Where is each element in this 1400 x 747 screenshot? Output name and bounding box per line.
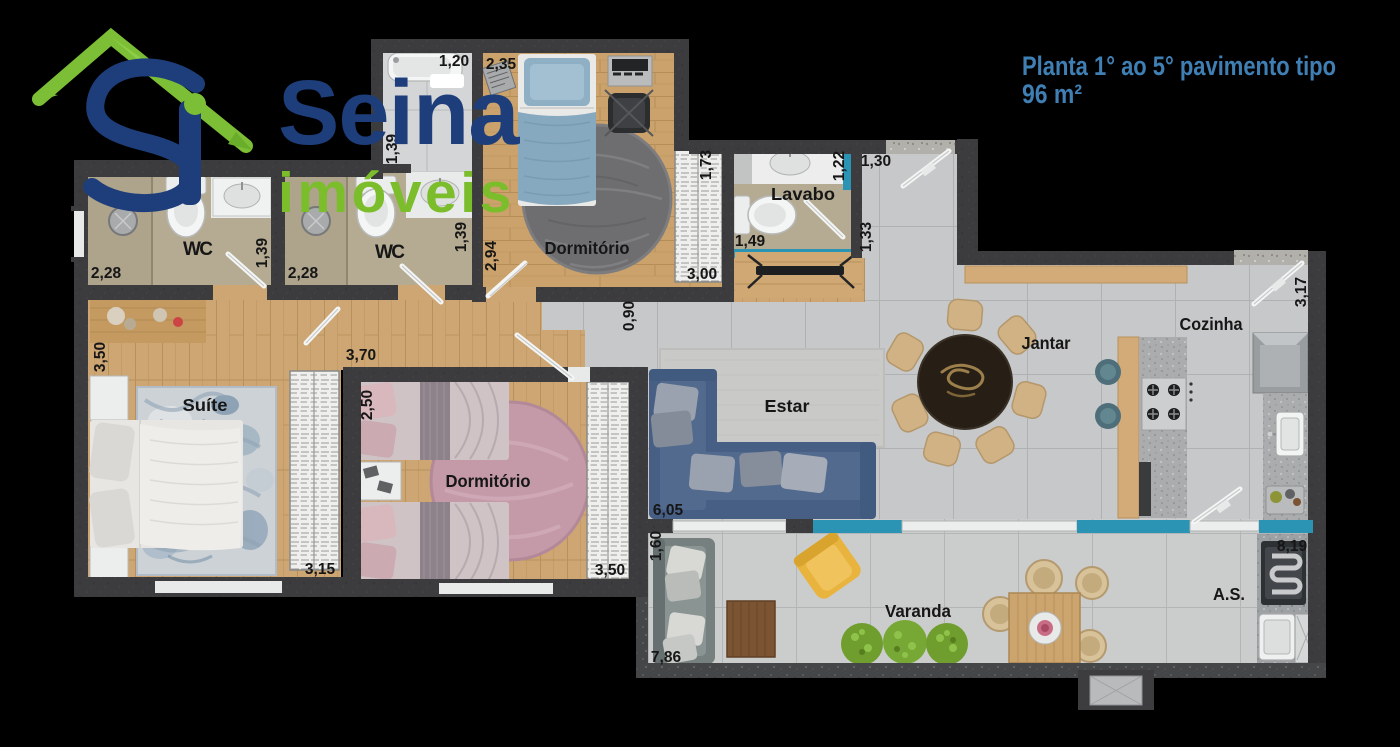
svg-text:3,50: 3,50 [595, 562, 625, 579]
svg-text:Varanda: Varanda [885, 601, 951, 621]
svg-text:2,50: 2,50 [359, 390, 376, 420]
svg-text:WC: WC [183, 239, 213, 260]
svg-text:Dormitório: Dormitório [545, 238, 630, 258]
svg-text:1,60: 1,60 [648, 531, 665, 561]
svg-text:2,28: 2,28 [288, 265, 319, 282]
svg-text:1,49: 1,49 [735, 233, 766, 250]
svg-text:Seina: Seina [278, 62, 520, 164]
svg-text:1,30: 1,30 [861, 153, 891, 170]
svg-text:1,39: 1,39 [453, 222, 470, 253]
svg-text:Lavabo: Lavabo [771, 184, 835, 204]
svg-text:2,28: 2,28 [91, 265, 122, 282]
svg-text:Suíte: Suíte [183, 395, 228, 415]
svg-text:Dormitório: Dormitório [446, 471, 531, 491]
svg-text:2,94: 2,94 [483, 241, 500, 272]
svg-text:7,86: 7,86 [651, 649, 682, 666]
svg-text:A.S.: A.S. [1213, 584, 1245, 604]
svg-text:Jantar: Jantar [1022, 333, 1071, 353]
svg-text:1,33: 1,33 [858, 222, 875, 253]
svg-text:3,15: 3,15 [305, 561, 336, 578]
svg-text:3,50: 3,50 [92, 342, 109, 372]
svg-text:96 m²: 96 m² [1022, 79, 1082, 109]
svg-text:1,73: 1,73 [698, 150, 715, 181]
svg-text:WC: WC [375, 242, 405, 263]
svg-text:0,90: 0,90 [621, 301, 638, 331]
svg-text:8,19: 8,19 [1277, 538, 1308, 555]
svg-text:6,05: 6,05 [653, 502, 684, 519]
svg-text:Planta 1° ao 5° pavimento tipo: Planta 1° ao 5° pavimento tipo [1022, 51, 1336, 81]
svg-text:1,22: 1,22 [831, 151, 848, 181]
svg-text:3,00: 3,00 [687, 266, 717, 283]
svg-text:Estar: Estar [765, 396, 810, 416]
svg-text:3,17: 3,17 [1293, 277, 1310, 307]
svg-text:imóveis: imóveis [278, 161, 515, 225]
svg-text:1,39: 1,39 [254, 238, 271, 269]
svg-text:Cozinha: Cozinha [1180, 314, 1243, 334]
svg-text:3,70: 3,70 [346, 347, 376, 364]
